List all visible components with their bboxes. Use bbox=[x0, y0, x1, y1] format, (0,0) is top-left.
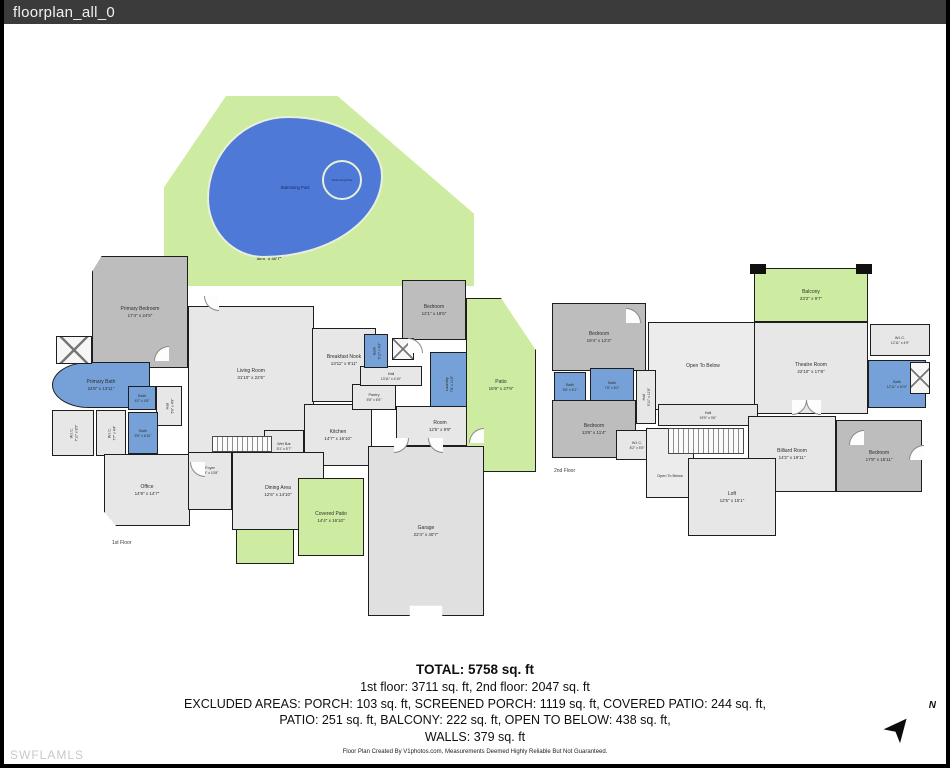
summary-total: TOTAL: 5758 sq. ft bbox=[4, 662, 946, 677]
room-office: Office 14'9" x 14'7" bbox=[104, 454, 190, 526]
room-pantry: Pantry 5'5" x 6'5" bbox=[352, 384, 396, 410]
room-name-label: Billiard Room bbox=[777, 447, 807, 455]
room-wic: W.I.C. 7'7" x 4'4" bbox=[96, 410, 126, 456]
floor2-label: 2nd Floor bbox=[554, 468, 575, 474]
room-dims-label: 5'1" x 5'7" bbox=[277, 447, 292, 451]
room-name-label: Patio bbox=[495, 378, 506, 386]
credit-line: Floor Plan Created By V1photos.com, Meas… bbox=[4, 749, 946, 755]
window-title-bar: floorplan_all_0 bbox=[4, 0, 946, 24]
room-bedroom: Bedroom 12'1" x 18'5" bbox=[402, 280, 466, 340]
room-dims-label: 14'2" x 19'11" bbox=[779, 455, 806, 460]
room-dims-label: 12'6" x 14'10" bbox=[264, 492, 291, 497]
room-dims-label: 14'4" x 16'10" bbox=[317, 518, 344, 523]
room-name-label: Kitchen bbox=[330, 428, 347, 436]
room-name-label: Living Room bbox=[237, 367, 265, 375]
room-name-label: Bedroom bbox=[584, 422, 604, 430]
room-name-label: Theatre Room bbox=[795, 361, 827, 369]
room-dims-label: 8'2" x 5'5" bbox=[630, 446, 645, 450]
room-dims-label: 13'6" x 11'4" bbox=[582, 430, 606, 435]
stairs bbox=[212, 436, 272, 452]
room-foyer: Foyer 8'5" x 10'8" bbox=[188, 452, 232, 510]
room-name-label: Room bbox=[433, 419, 446, 427]
room-name-label: Open To Below bbox=[686, 362, 720, 370]
room-dims-label: 17'4" x 24'5" bbox=[128, 313, 153, 318]
room-dims-label: 7'7" x 4'4" bbox=[112, 426, 116, 441]
room-garage: Garage 22'4" x 40'7" bbox=[368, 446, 484, 616]
room-name-label: Hall bbox=[164, 399, 170, 414]
room-name-label: Office bbox=[141, 483, 154, 491]
room-dims-label: 14'7" x 16'10" bbox=[324, 436, 351, 441]
room-bath: Bath 5'6" x 5'1" bbox=[554, 372, 586, 402]
room-dims-label: 7'10" x 8'5" bbox=[74, 425, 78, 442]
summary-floors: 1st floor: 3711 sq. ft, 2nd floor: 2047 … bbox=[4, 680, 946, 694]
room-dims-label: 7'6" x 5'2" bbox=[605, 386, 620, 390]
area-summary: TOTAL: 5758 sq. ft 1st floor: 3711 sq. f… bbox=[4, 662, 946, 755]
spa-label: Swimming Pool bbox=[332, 178, 353, 182]
window-title: floorplan_all_0 bbox=[4, 4, 115, 21]
room-dims-label: 5'10" x 4'6" bbox=[377, 343, 381, 360]
room-dims-label: 5'6" x 5'1" bbox=[563, 388, 578, 392]
room-balcony: Balcony 23'2" x 9'7" bbox=[754, 268, 868, 322]
room-dims-label: 17'8" x 15'11" bbox=[866, 457, 893, 462]
mls-watermark: SWFLAMLS bbox=[10, 748, 84, 762]
room-dims-label: 31'10" x 22'6" bbox=[237, 375, 264, 380]
room-name-label: Covered Patio bbox=[315, 510, 347, 518]
room-dims-label: 12'11" x 10'9" bbox=[887, 385, 907, 389]
room-covered-patio: Covered Patio 14'4" x 16'10" bbox=[298, 478, 364, 556]
wall-segment bbox=[856, 264, 872, 274]
room-spa: Swimming Pool bbox=[322, 160, 362, 200]
room-dims-label: 19'4" x 12'3" bbox=[587, 338, 612, 343]
compass-north-label: N bbox=[929, 700, 936, 711]
room-dims-label: 12'1" x 18'5" bbox=[422, 311, 447, 316]
room-bath: Bath 5'9" x 6'10" bbox=[128, 412, 158, 454]
room-dims-label: 16'9" x 27'9" bbox=[489, 386, 514, 391]
room-loft: Loft 12'5" x 15'1" bbox=[688, 458, 776, 536]
room-dims-label: 5'9" x 6'10" bbox=[135, 434, 152, 438]
room-name-label: Primary Bedroom bbox=[121, 305, 160, 313]
room-hall: Hall 5'6" x 4'9" bbox=[156, 386, 182, 426]
room-name-label: Balcony bbox=[802, 288, 820, 296]
room-dims-label: 22'10" x 17'8" bbox=[797, 369, 824, 374]
room-name-label: Dining Area bbox=[265, 484, 291, 492]
room-name-label: Open To Below bbox=[657, 473, 683, 479]
room-dims-label: 5'5" x 6'5" bbox=[367, 398, 382, 402]
room-hall: Hall 19'9" x 3'6" bbox=[658, 404, 758, 426]
wall-segment bbox=[750, 264, 766, 274]
room-bath: Bath 6'2" x 4'8" bbox=[128, 386, 156, 410]
room-dims-label: 22'4" x 40'7" bbox=[414, 532, 439, 537]
room-name-label: Bath bbox=[371, 343, 377, 360]
room-name-label: Bedroom bbox=[869, 449, 889, 457]
closet-hatch bbox=[910, 362, 930, 394]
room-name-label: Hall bbox=[641, 388, 647, 406]
room-name-label: W.I.C. bbox=[68, 425, 74, 442]
floor1-label: 1st Floor bbox=[112, 540, 131, 546]
room-dims-label: 5'6" x 4'9" bbox=[170, 399, 174, 414]
stairs bbox=[668, 428, 744, 454]
room-primary-bedroom: Primary Bedroom 17'4" x 24'5" bbox=[92, 256, 188, 368]
room-hall: Hall 5'10" x 11'8" bbox=[636, 370, 656, 424]
door-arc bbox=[408, 338, 423, 353]
room-patio: Patio 16'9" x 27'9" bbox=[466, 298, 536, 472]
room-dims-label: 6'2" x 4'8" bbox=[135, 399, 150, 403]
room-name-label: Laundry bbox=[444, 376, 450, 392]
room-name-label: Primary Bath bbox=[87, 378, 116, 386]
summary-excluded-2: PATIO: 251 sq. ft, BALCONY: 222 sq. ft, … bbox=[4, 713, 946, 727]
room-dims-label: 12'11" x 4'9" bbox=[891, 341, 909, 345]
room-name-label: Garage bbox=[418, 524, 435, 532]
compass: N ➤ bbox=[882, 700, 938, 756]
room-dims-label: 13'11" x 4'10" bbox=[381, 377, 401, 381]
room-dims-label: 13'11" x 9'11" bbox=[331, 361, 358, 366]
room-wic: W.I.C. 7'10" x 8'5" bbox=[52, 410, 94, 456]
room-name-label: W.I.C. bbox=[106, 426, 112, 441]
summary-excluded-1: EXCLUDED AREAS: PORCH: 103 sq. ft, SCREE… bbox=[4, 697, 946, 711]
room-hall: Hall 13'11" x 4'10" bbox=[360, 366, 422, 386]
pool-label: Swimming Pool bbox=[281, 185, 310, 190]
room-dims-label: 14'9" x 14'7" bbox=[135, 491, 160, 496]
room-bath: Bath 7'6" x 5'2" bbox=[590, 368, 634, 402]
room-dims-label: 24'6" x 13'11" bbox=[88, 386, 115, 391]
room-name-label: Bedroom bbox=[589, 330, 609, 338]
room-wic: W.I.C. 12'11" x 4'9" bbox=[870, 324, 930, 356]
room-dims-label: 7'8" x 11'8" bbox=[450, 376, 454, 392]
room-name-label: Bedroom bbox=[424, 303, 444, 311]
room-bath: Bath 5'10" x 4'6" bbox=[364, 334, 388, 368]
compass-arrow-icon: ➤ bbox=[874, 704, 923, 752]
floorplan-image: floorplan_all_0 Screened Porch 48'6" x 4… bbox=[0, 0, 950, 768]
room-dims-label: 23'2" x 9'7" bbox=[800, 296, 822, 301]
summary-excluded-3: WALLS: 379 sq. ft bbox=[4, 730, 946, 744]
room-dims-label: 19'9" x 3'6" bbox=[700, 416, 717, 420]
closet-hatch bbox=[56, 336, 92, 364]
room-name-label: Loft bbox=[728, 490, 736, 498]
room-open-to-below: Open To Below bbox=[648, 322, 758, 410]
room-dims-label: 12'5" x 15'1" bbox=[720, 498, 745, 503]
room-dims-label: 5'10" x 11'8" bbox=[647, 388, 651, 406]
room-dims-label: 12'5" x 9'9" bbox=[429, 427, 451, 432]
room-name-label: Breakfast Nook bbox=[327, 353, 361, 361]
